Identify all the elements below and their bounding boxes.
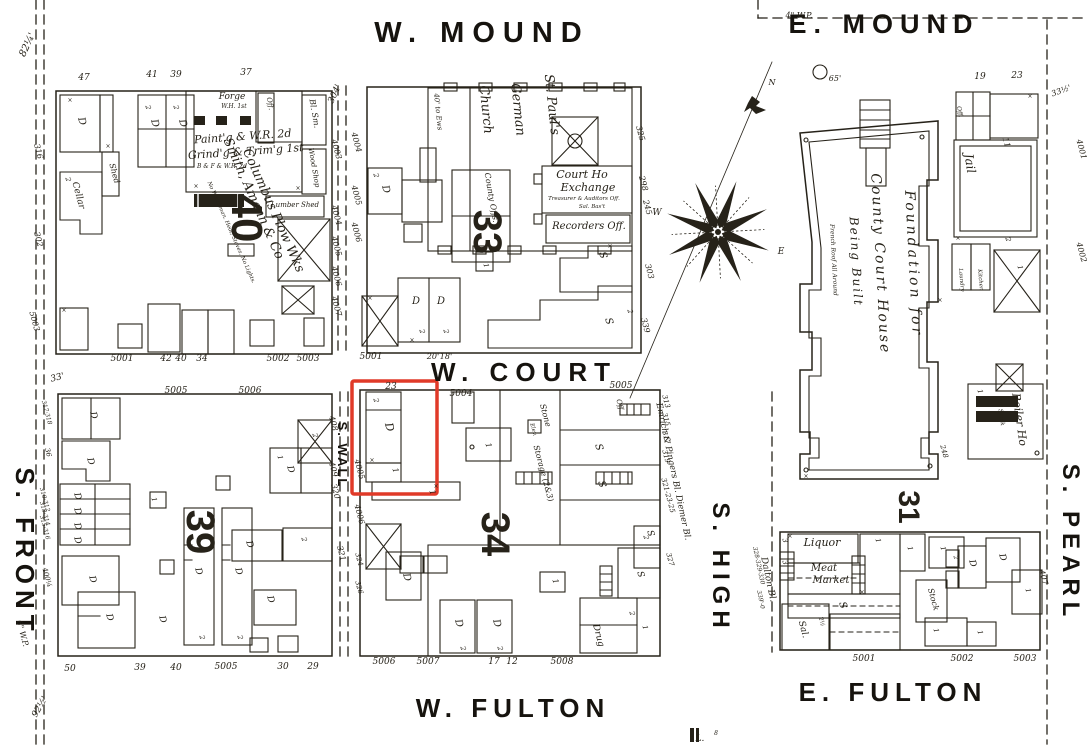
lot-number-mark: × [369,457,374,464]
map-canvas: W. MOUNDE. MOUNDW. COURTW. FULTONE. FULT… [0,0,1087,748]
lot-number-mark: × [295,185,300,192]
lot-number-5006: 5006 [373,657,396,667]
lot-number-5005: 5005 [215,662,238,672]
street-label-s-front: S. FRONT [10,467,40,636]
sanborn-map-page: W. MOUNDE. MOUNDW. COURTW. FULTONE. FULT… [0,0,1087,748]
lot-number-39: 39 [134,663,146,673]
lot-number-mark: × [409,337,414,344]
street-label-e-fulton: E. FULTON [799,677,988,707]
lot-number-5007: 5007 [417,657,440,667]
lot-number-5004: 5004 [450,389,473,399]
building-label-meat: Meat [810,563,838,574]
lot-number-l: L. [695,734,705,744]
lot-number-5003: 5003 [297,354,320,364]
building-label-liquor: Liquor [803,536,842,549]
building-label-court-ho: Court Ho [556,168,608,181]
lot-number-mark: × [859,589,864,596]
lot-number-mark: × [367,295,372,302]
lot-number-12: 12 [506,657,518,667]
lot-number-39: 39 [170,70,182,80]
block-number-39: 39 [178,510,222,555]
lot-number-5001: 5001 [360,352,383,362]
building-label-forge: Forge [218,92,246,102]
lot-number-5005: 5005 [610,381,633,391]
lot-number-5002: 5002 [267,354,290,364]
lot-number-17: 17 [488,657,500,667]
lot-number-e: E [777,247,785,257]
lot-number-20: 20' [426,352,439,361]
lot-number-mark: × [67,97,72,104]
building-label-treasurer-auditors-off: Treasurer & Auditors Off. [548,196,620,202]
lot-number-34: 34 [196,354,208,364]
lot-number-19: 19 [974,72,986,82]
lot-number-37: 37 [240,68,252,78]
lot-number-65: 65' [829,74,841,83]
street-label-s-pearl: S. PEARL [1057,464,1084,623]
building-label-recorders-off: Recorders Off. [551,221,626,232]
building-label-market: Market [812,575,851,586]
street-label-w-mound: W. MOUND [374,17,589,49]
building-label-sal-bas-t: Sal. Bas't [579,204,606,210]
lot-number-40: 40 [169,663,182,673]
street-label-s-high: S. HIGH [707,502,734,633]
street-label-e-mound: E. MOUND [789,9,980,39]
lot-number-mark: × [193,183,198,190]
lot-number-5008: 5008 [551,657,574,667]
lot-number-n: N [768,78,777,87]
building-label-lumber-shed: Lumber Shed [270,201,319,209]
lot-number-42: 42 [159,354,172,364]
lot-number-4-w-p: 4" W.P. [785,11,813,20]
lot-number-mark: × [955,235,960,242]
lot-number-18: 18' [440,352,452,361]
lot-number-5002: 5002 [951,654,974,664]
lot-number-23: 23 [384,382,397,392]
lot-number-23: 23 [1010,71,1023,81]
lot-number-mark: × [607,243,612,250]
lot-number-30: 30 [277,662,289,672]
lot-number-41: 41 [145,70,157,80]
building-label-exchange: Exchange [560,181,616,194]
street-label-w-court: W. COURT [431,357,617,387]
street-label-w-fulton: W. FULTON [416,693,611,723]
lot-number-mark: × [937,297,942,304]
lot-number-5001: 5001 [111,354,134,364]
lot-number-d: D [436,296,445,307]
lot-number-mark: × [433,483,438,490]
lot-number-47: 47 [77,73,90,83]
lot-number-5006: 5006 [239,386,262,396]
lot-number-mark: × [61,307,66,314]
lot-number-5001: 5001 [853,654,876,664]
lot-number-mark: × [787,533,792,540]
block-number-33: 33 [465,210,509,255]
lot-number-5003: 5003 [1014,654,1037,664]
lot-number-mark: × [1027,93,1032,100]
lot-number-29: 29 [306,662,319,672]
lot-number-d: D [411,296,420,307]
lot-number-8: 8 [714,730,718,737]
building-label-w-h-1st: W.H. 1st [221,103,247,110]
lot-number-w: W [652,208,662,218]
lot-number-5005: 5005 [165,386,188,396]
street-label-s-wall: S. WALL [335,422,350,489]
block-number-34: 34 [473,512,517,557]
lot-number-mark: × [105,143,110,150]
block-number-31: 31 [892,490,925,523]
lot-number-mark: × [803,473,808,480]
lot-number-40: 40 [174,354,187,364]
lot-number-50: 50 [64,664,76,674]
